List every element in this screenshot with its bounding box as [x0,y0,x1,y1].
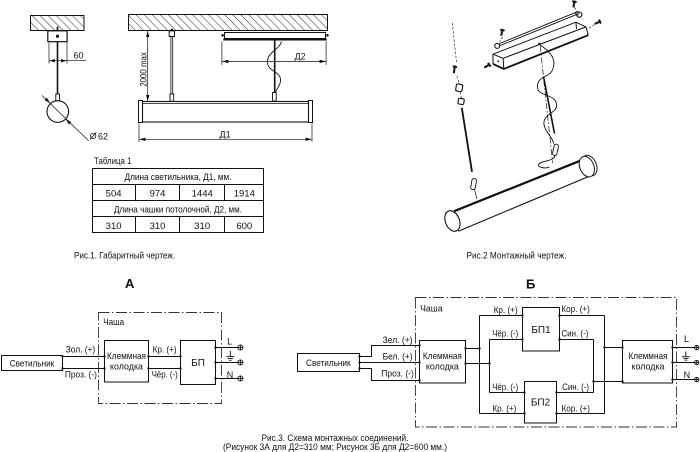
svg-text:Проз. (-): Проз. (-) [65,369,97,379]
svg-text:Зол. (+): Зол. (+) [66,345,96,355]
svg-text:Таблица 1: Таблица 1 [94,156,132,166]
svg-text:600: 600 [236,221,252,232]
svg-text:Кр. (+): Кр. (+) [494,305,518,315]
svg-text:Зел. (+): Зел. (+) [383,335,413,345]
svg-text:Чёр. (-): Чёр. (-) [492,382,518,392]
svg-text:N: N [684,370,691,380]
svg-text:Длина чашки потолочной, Д2, мм: Длина чашки потолочной, Д2, мм. [114,205,242,216]
svg-text:Кор. (+): Кор. (+) [561,304,590,314]
svg-text:БП2: БП2 [531,397,551,408]
svg-text:310: 310 [194,221,210,232]
svg-text:Кр. (+): Кр. (+) [492,403,516,413]
svg-text:2000 max: 2000 max [138,52,148,87]
svg-text:Светильник: Светильник [10,358,55,369]
svg-text:1444: 1444 [192,189,213,200]
svg-text:L: L [227,336,232,346]
svg-text:Д1: Д1 [220,129,231,139]
svg-text:Бел. (+): Бел. (+) [383,351,413,361]
svg-text:1914: 1914 [234,189,255,200]
svg-text:Чаша: Чаша [103,317,125,328]
svg-text:Рис.2 Монтажный чертеж.: Рис.2 Монтажный чертеж. [467,250,567,260]
svg-text:Кор. (+): Кор. (+) [562,403,591,413]
svg-text:Клеммная: Клеммная [107,351,146,362]
svg-text:Длина светильника, Д1, мм.: Длина светильника, Д1, мм. [125,172,232,183]
svg-text:974: 974 [150,189,166,200]
svg-text:колодка: колодка [632,362,666,373]
svg-text:Син. (-): Син. (-) [561,329,588,339]
svg-text:L: L [684,334,689,344]
svg-text:Чёр. (-): Чёр. (-) [152,369,178,379]
svg-text:А: А [125,276,135,291]
svg-text:Чёр. (-): Чёр. (-) [492,329,518,339]
svg-text:Чаша: Чаша [420,304,443,315]
svg-text:Д2: Д2 [295,51,306,61]
svg-text:Проз. (-): Проз. (-) [381,369,414,379]
svg-text:Рис.1. Габаритный чертеж.: Рис.1. Габаритный чертеж. [74,250,175,260]
svg-text:504: 504 [106,189,122,200]
svg-text:(Рисунок 3А для Д2=310 мм; Рис: (Рисунок 3А для Д2=310 мм; Рисунок 3Б дл… [223,442,447,452]
svg-text:Клеммная: Клеммная [423,351,462,362]
svg-text:колодка: колодка [110,361,144,372]
svg-text:Светильник: Светильник [306,358,351,369]
svg-text:62: 62 [98,131,108,141]
svg-text:Син. (-): Син. (-) [562,382,589,392]
svg-text:N: N [227,370,234,380]
svg-text:60: 60 [74,51,84,61]
svg-text:БП1: БП1 [531,325,551,336]
svg-text:БП: БП [191,358,205,369]
svg-text:колодка: колодка [426,362,460,373]
svg-text:Б: Б [526,276,535,291]
svg-text:Кр. (+): Кр. (+) [153,345,177,355]
svg-text:310: 310 [150,221,166,232]
svg-text:310: 310 [106,221,122,232]
svg-text:Клеммная: Клеммная [629,351,668,362]
